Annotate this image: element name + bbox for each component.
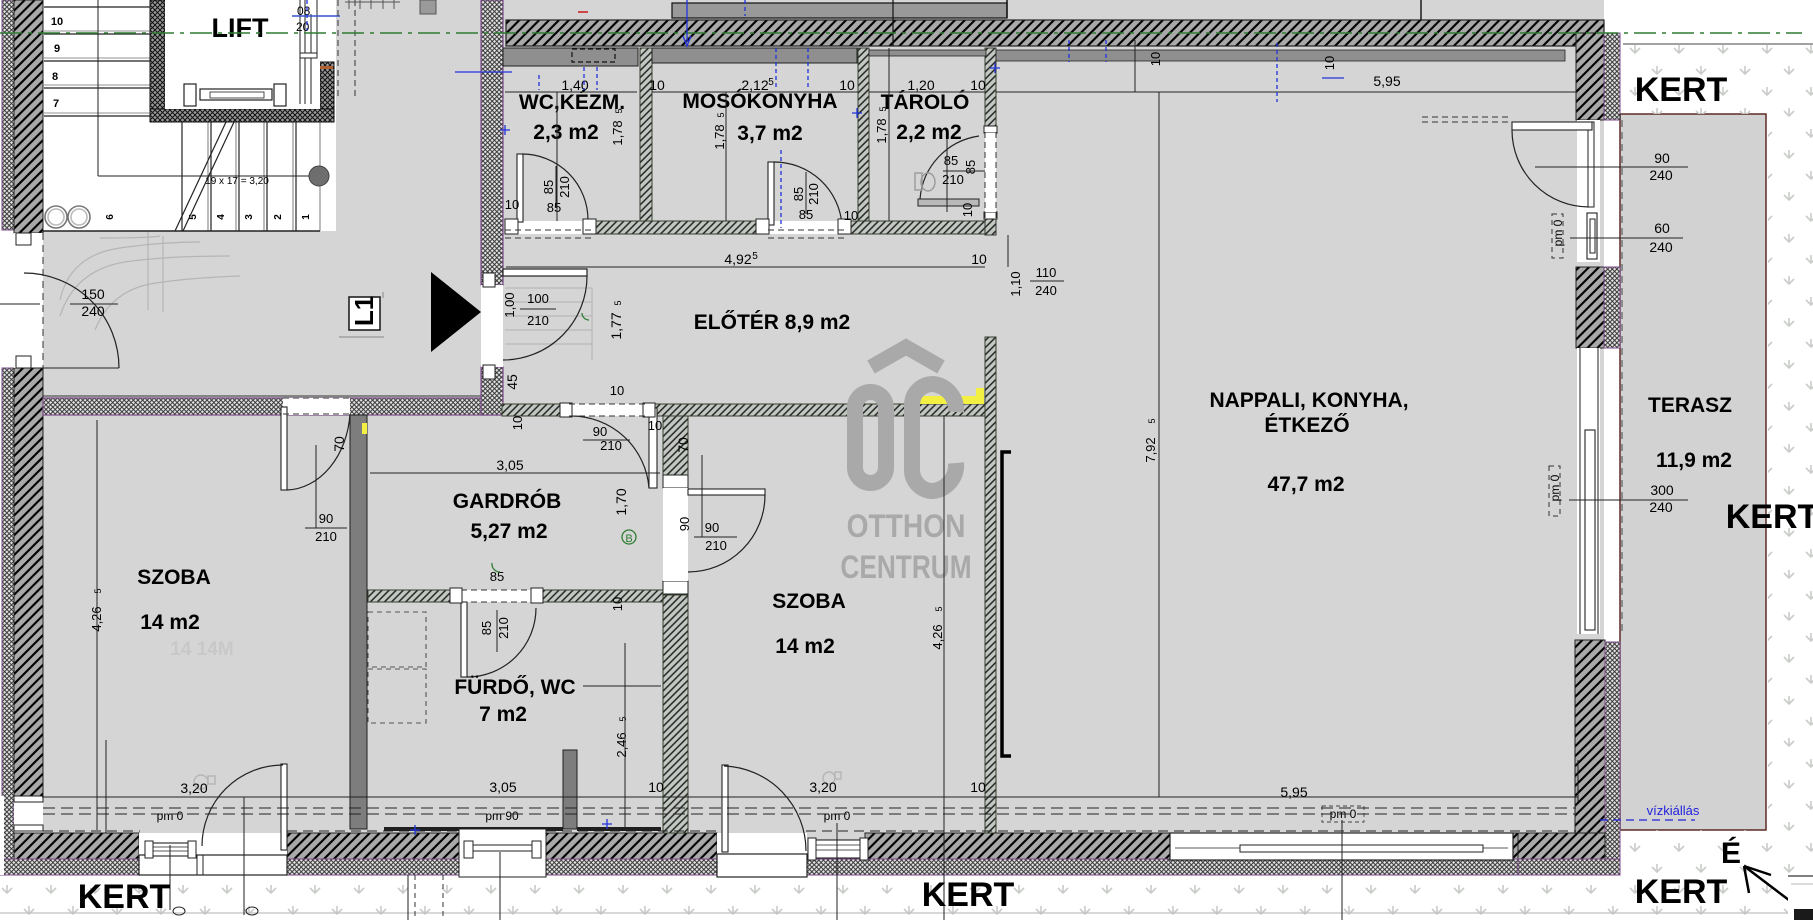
svg-text:2,3 m2: 2,3 m2 (533, 121, 598, 144)
svg-text:10: 10 (510, 416, 525, 430)
svg-text:85: 85 (547, 200, 561, 215)
svg-text:300: 300 (1650, 482, 1674, 498)
svg-text:4,92: 4,92 (724, 251, 751, 267)
svg-text:KERT: KERT (1635, 873, 1728, 911)
svg-text:11,9 m2: 11,9 m2 (1656, 449, 1732, 472)
svg-text:SZOBA: SZOBA (772, 590, 846, 613)
svg-text:85: 85 (799, 207, 813, 222)
svg-text:10: 10 (970, 77, 986, 93)
svg-text:150: 150 (81, 286, 105, 302)
svg-text:5,95: 5,95 (1373, 73, 1400, 89)
svg-text:240: 240 (1649, 499, 1673, 515)
svg-text:110: 110 (1036, 265, 1057, 280)
svg-text:5: 5 (1147, 418, 1157, 423)
svg-text:10: 10 (610, 383, 624, 398)
svg-text:5: 5 (618, 716, 628, 721)
svg-text:14 m2: 14 m2 (140, 611, 200, 634)
svg-text:5: 5 (93, 588, 103, 593)
svg-text:4: 4 (216, 214, 227, 220)
svg-text:10: 10 (610, 597, 625, 611)
svg-text:85: 85 (541, 180, 556, 194)
svg-text:210: 210 (705, 538, 727, 553)
svg-text:90: 90 (677, 517, 692, 531)
svg-text:3,7 m2: 3,7 m2 (737, 122, 802, 145)
svg-text:1,78: 1,78 (874, 118, 889, 143)
svg-text:240: 240 (1035, 283, 1057, 298)
svg-text:10: 10 (649, 77, 665, 93)
svg-text:210: 210 (806, 183, 821, 205)
svg-text:3,05: 3,05 (496, 457, 523, 473)
svg-text:2,2 m2: 2,2 m2 (896, 121, 961, 144)
svg-text:210: 210 (496, 617, 511, 639)
svg-text:LIFT: LIFT (212, 13, 269, 43)
svg-text:10: 10 (971, 251, 987, 267)
svg-text:90: 90 (593, 424, 607, 439)
svg-text:WC,KÉZM.: WC,KÉZM. (519, 91, 625, 114)
svg-text:10: 10 (1148, 52, 1163, 66)
svg-text:5: 5 (878, 106, 888, 111)
svg-text:240: 240 (1649, 167, 1673, 183)
svg-text:3,05: 3,05 (489, 779, 516, 795)
svg-text:3,20: 3,20 (180, 780, 207, 796)
svg-text:240: 240 (81, 303, 105, 319)
svg-text:KERT: KERT (78, 878, 171, 916)
svg-text:5: 5 (768, 77, 774, 88)
svg-text:pm 90: pm 90 (485, 809, 519, 823)
svg-text:GARDRÓB: GARDRÓB (453, 489, 562, 513)
svg-text:85: 85 (963, 160, 978, 174)
svg-text:5: 5 (613, 300, 623, 305)
svg-text:B: B (625, 533, 632, 545)
svg-text:2,12: 2,12 (741, 77, 768, 93)
svg-text:2: 2 (273, 214, 284, 220)
svg-text:2,46: 2,46 (614, 732, 629, 757)
svg-text:85: 85 (479, 621, 494, 635)
svg-text:10: 10 (51, 16, 63, 28)
svg-text:TERASZ: TERASZ (1648, 394, 1732, 417)
svg-text:90: 90 (319, 511, 333, 526)
svg-text:vízkiállás: vízkiállás (1647, 803, 1700, 818)
svg-text:ELŐTÉR 8,9 m2: ELŐTÉR 8,9 m2 (694, 311, 850, 334)
svg-text:47,7 m2: 47,7 m2 (1267, 473, 1344, 496)
svg-text:5: 5 (716, 112, 726, 117)
svg-text:10: 10 (839, 77, 855, 93)
svg-text:OTTHON: OTTHON (847, 509, 966, 544)
svg-text:10: 10 (1322, 56, 1337, 70)
svg-text:240: 240 (1649, 239, 1673, 255)
svg-text:pm 0: pm 0 (1548, 474, 1562, 501)
svg-text:85: 85 (944, 153, 958, 168)
svg-text:1,70: 1,70 (613, 488, 629, 515)
svg-text:5: 5 (752, 251, 758, 262)
svg-text:1,40: 1,40 (561, 77, 588, 93)
svg-text:KERT: KERT (922, 876, 1015, 914)
svg-text:FÜRDŐ, WC: FÜRDŐ, WC (454, 676, 575, 699)
svg-text:NAPPALI, KONYHA,: NAPPALI, KONYHA, (1209, 389, 1408, 412)
svg-text:pm 0: pm 0 (157, 809, 184, 823)
svg-text:1,78: 1,78 (610, 120, 625, 145)
svg-text:90: 90 (1654, 150, 1670, 166)
svg-text:10: 10 (844, 208, 858, 223)
svg-text:85: 85 (791, 187, 806, 201)
svg-text:1,77: 1,77 (608, 312, 624, 339)
svg-text:210: 210 (557, 176, 572, 198)
svg-text:210: 210 (942, 172, 964, 187)
svg-text:1: 1 (301, 214, 312, 220)
svg-text:8: 8 (52, 71, 58, 83)
svg-text:19 x 17 = 3,20: 19 x 17 = 3,20 (205, 176, 269, 187)
svg-text:1,78: 1,78 (712, 124, 727, 149)
svg-text:É: É (1721, 836, 1741, 870)
svg-text:6: 6 (105, 214, 116, 220)
svg-text:14 14M: 14 14M (170, 639, 233, 660)
svg-text:4,26: 4,26 (930, 624, 945, 649)
svg-text:60: 60 (1654, 220, 1670, 236)
svg-text:7: 7 (53, 98, 59, 110)
svg-text:KERT: KERT (1726, 498, 1813, 536)
svg-text:pm 0: pm 0 (1551, 219, 1565, 246)
svg-text:1,20: 1,20 (907, 77, 934, 93)
svg-text:10: 10 (505, 197, 519, 212)
svg-text:ÉTKEZŐ: ÉTKEZŐ (1264, 414, 1349, 437)
svg-text:1,10: 1,10 (1008, 271, 1023, 296)
svg-text:10: 10 (648, 779, 664, 795)
svg-text:SZOBA: SZOBA (137, 566, 211, 589)
svg-text:7,92: 7,92 (1143, 437, 1158, 462)
svg-text:TÁROLÓ: TÁROLÓ (881, 90, 970, 114)
svg-text:L1: L1 (349, 296, 379, 326)
svg-text:90: 90 (705, 520, 719, 535)
svg-text:210: 210 (527, 313, 549, 328)
svg-text:14 m2: 14 m2 (775, 635, 835, 658)
svg-text:70: 70 (675, 437, 691, 453)
svg-text:7 m2: 7 m2 (479, 703, 527, 726)
svg-text:100: 100 (527, 291, 549, 306)
svg-text:KERT: KERT (1635, 71, 1728, 109)
svg-text:CENTRUM: CENTRUM (840, 551, 971, 586)
svg-text:70: 70 (331, 436, 347, 452)
svg-text:10: 10 (960, 203, 975, 217)
svg-text:45: 45 (504, 374, 520, 390)
svg-text:10: 10 (970, 779, 986, 795)
svg-text:1,00: 1,00 (502, 292, 517, 317)
svg-text:5: 5 (934, 606, 944, 611)
svg-text:10: 10 (648, 418, 662, 433)
svg-text:5,27 m2: 5,27 m2 (470, 520, 547, 543)
svg-text:3,20: 3,20 (809, 779, 836, 795)
svg-text:9: 9 (54, 43, 60, 55)
svg-text:pm 0: pm 0 (824, 809, 851, 823)
svg-text:210: 210 (315, 529, 337, 544)
svg-text:3: 3 (244, 214, 255, 220)
svg-text:5,95: 5,95 (1280, 784, 1307, 800)
svg-text:5: 5 (614, 108, 624, 113)
